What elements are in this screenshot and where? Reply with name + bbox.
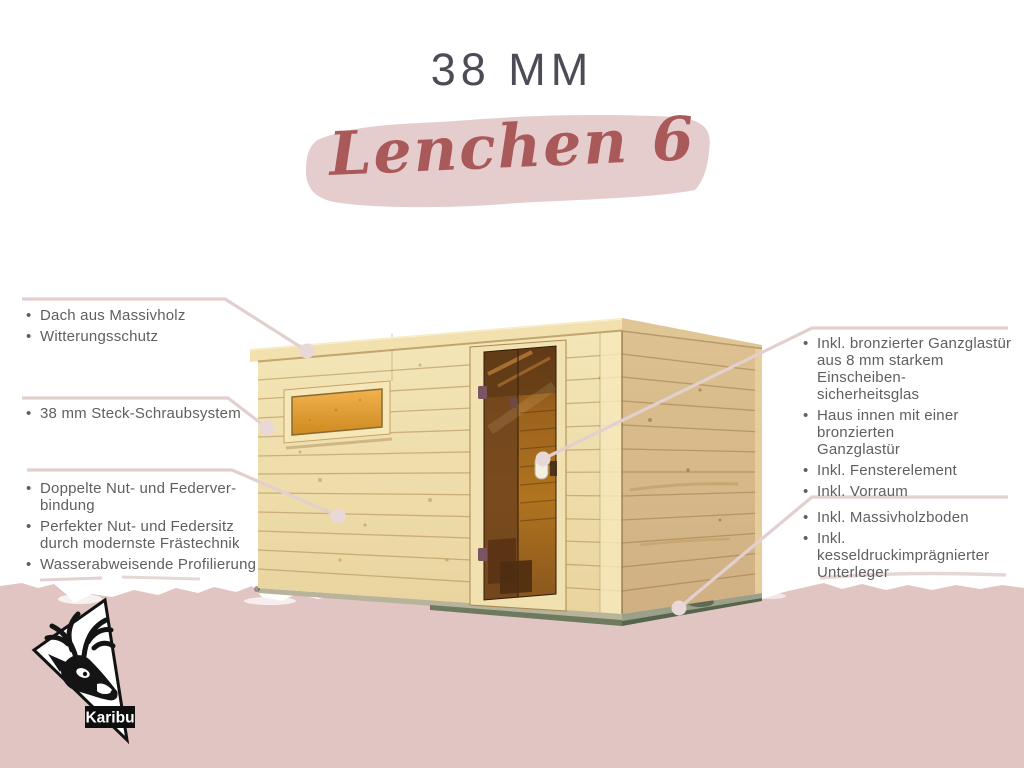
bullet-icon: • [26, 480, 40, 497]
bullet-icon: • [803, 530, 817, 547]
callout-ganzglastuer: • Inkl. bronzierter Ganzglastür aus 8 mm… [803, 335, 1021, 504]
bullet-icon: • [803, 509, 817, 526]
callout-line: Inkl. Fensterelement [817, 462, 957, 479]
product-annotation-page: 38 MM Lenchen 6 • Dach aus Massivholz • … [0, 0, 1024, 768]
callout-item: • Haus innen mit einer bronzierten Ganzg… [803, 407, 1021, 458]
callout-item: • Inkl. Massivholzboden [803, 509, 1021, 526]
callout-item: • Witterungsschutz [26, 328, 261, 345]
callout-line: Inkl. Massivholzboden [817, 509, 969, 526]
bullet-icon: • [26, 405, 40, 422]
callout-line: Inkl. bronzierter Ganzglastür [817, 335, 1011, 352]
bullet-icon: • [26, 307, 40, 324]
callout-line: durch modernste Frästechnik [40, 535, 240, 552]
logo-wordmark: Karibu [85, 710, 134, 727]
bullet-icon: • [26, 328, 40, 345]
callout-line: Doppelte Nut- und Federver- [40, 480, 236, 497]
callout-nut-feder: • Doppelte Nut- und Federver- bindung • … [26, 480, 261, 577]
callout-line: Perfekter Nut- und Federsitz [40, 518, 234, 535]
bullet-icon: • [803, 483, 817, 500]
callout-item: • Inkl. kesseldruckimprägnierter Unterle… [803, 530, 1021, 581]
callout-line: bindung [40, 497, 95, 514]
callout-roof: • Dach aus Massivholz • Witterungsschutz [26, 307, 261, 349]
page-title: 38 MM [0, 44, 1024, 96]
callout-item: • Dach aus Massivholz [26, 307, 261, 324]
callout-line: aus 8 mm starkem Einscheiben- [817, 352, 944, 386]
product-name-wrap: Lenchen 6 [0, 112, 1024, 182]
bullet-icon: • [803, 407, 817, 424]
callout-item: • Wasserabweisende Profilierung [26, 556, 261, 573]
callout-line: Unterleger [817, 564, 889, 581]
bullet-icon: • [26, 518, 40, 535]
callout-line: Wasserabweisende Profilierung [40, 556, 256, 573]
bullet-icon: • [26, 556, 40, 573]
callout-line: 38 mm Steck-Schraubsystem [40, 405, 241, 422]
callout-item: • 38 mm Steck-Schraubsystem [26, 405, 261, 422]
callout-item: • Inkl. Fensterelement [803, 462, 1021, 479]
callout-line: Inkl. kesseldruckimprägnierter [817, 530, 989, 564]
callout-item: • Perfekter Nut- und Federsitz durch mod… [26, 518, 261, 552]
callout-line: Haus innen mit einer bronzierten [817, 407, 959, 441]
callout-steck-schraubsystem: • 38 mm Steck-Schraubsystem [26, 405, 261, 426]
callout-line: Dach aus Massivholz [40, 307, 186, 324]
bullet-icon: • [803, 462, 817, 479]
product-name: Lenchen 6 [327, 104, 696, 190]
callout-item: • Inkl. Vorraum [803, 483, 1021, 500]
callout-line: sicherheitsglas [817, 386, 919, 403]
callout-line: Inkl. Vorraum [817, 483, 908, 500]
callout-line: Ganzglastür [817, 441, 900, 458]
callout-item: • Inkl. bronzierter Ganzglastür aus 8 mm… [803, 335, 1021, 403]
callout-item: • Doppelte Nut- und Federver- bindung [26, 480, 261, 514]
karibu-logo: Karibu [24, 592, 140, 748]
bullet-icon: • [803, 335, 817, 352]
callout-boden: • Inkl. Massivholzboden • Inkl. kesseldr… [803, 509, 1021, 585]
connector-dots [260, 344, 687, 616]
callout-line: Witterungsschutz [40, 328, 158, 345]
